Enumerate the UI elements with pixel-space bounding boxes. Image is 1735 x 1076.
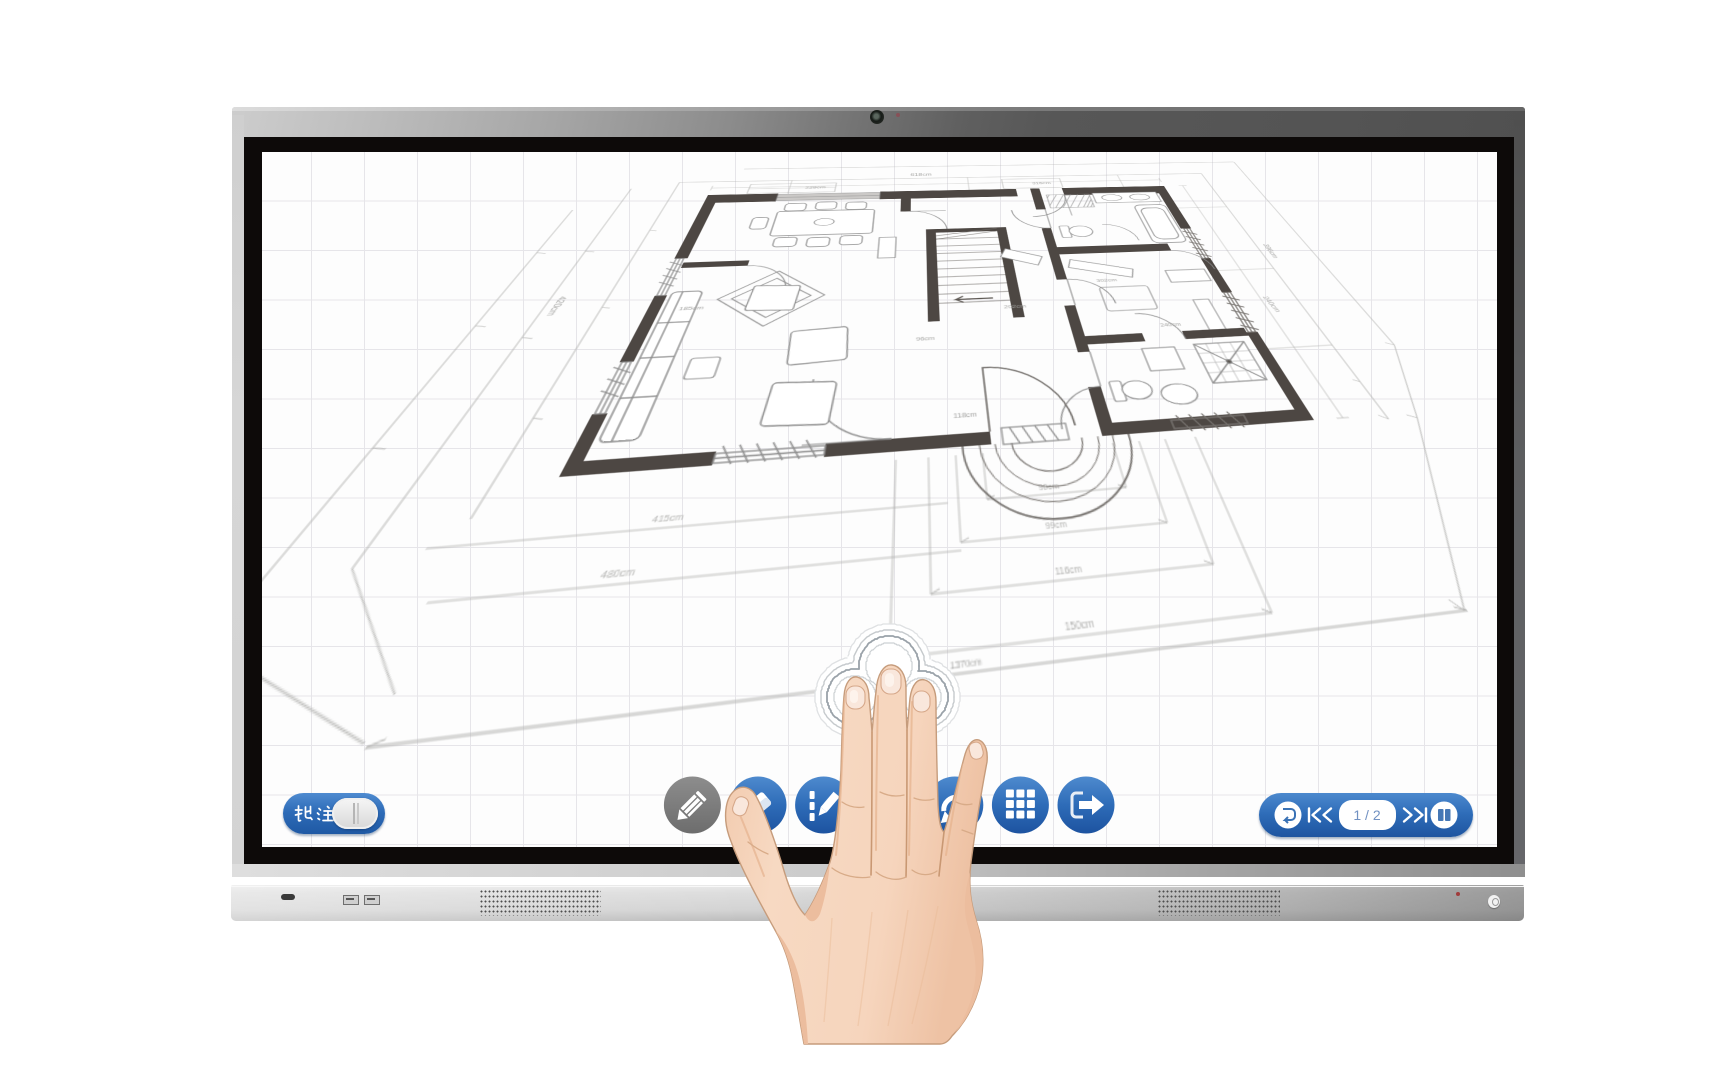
- svg-text:1 / 2: 1 / 2: [1353, 807, 1380, 823]
